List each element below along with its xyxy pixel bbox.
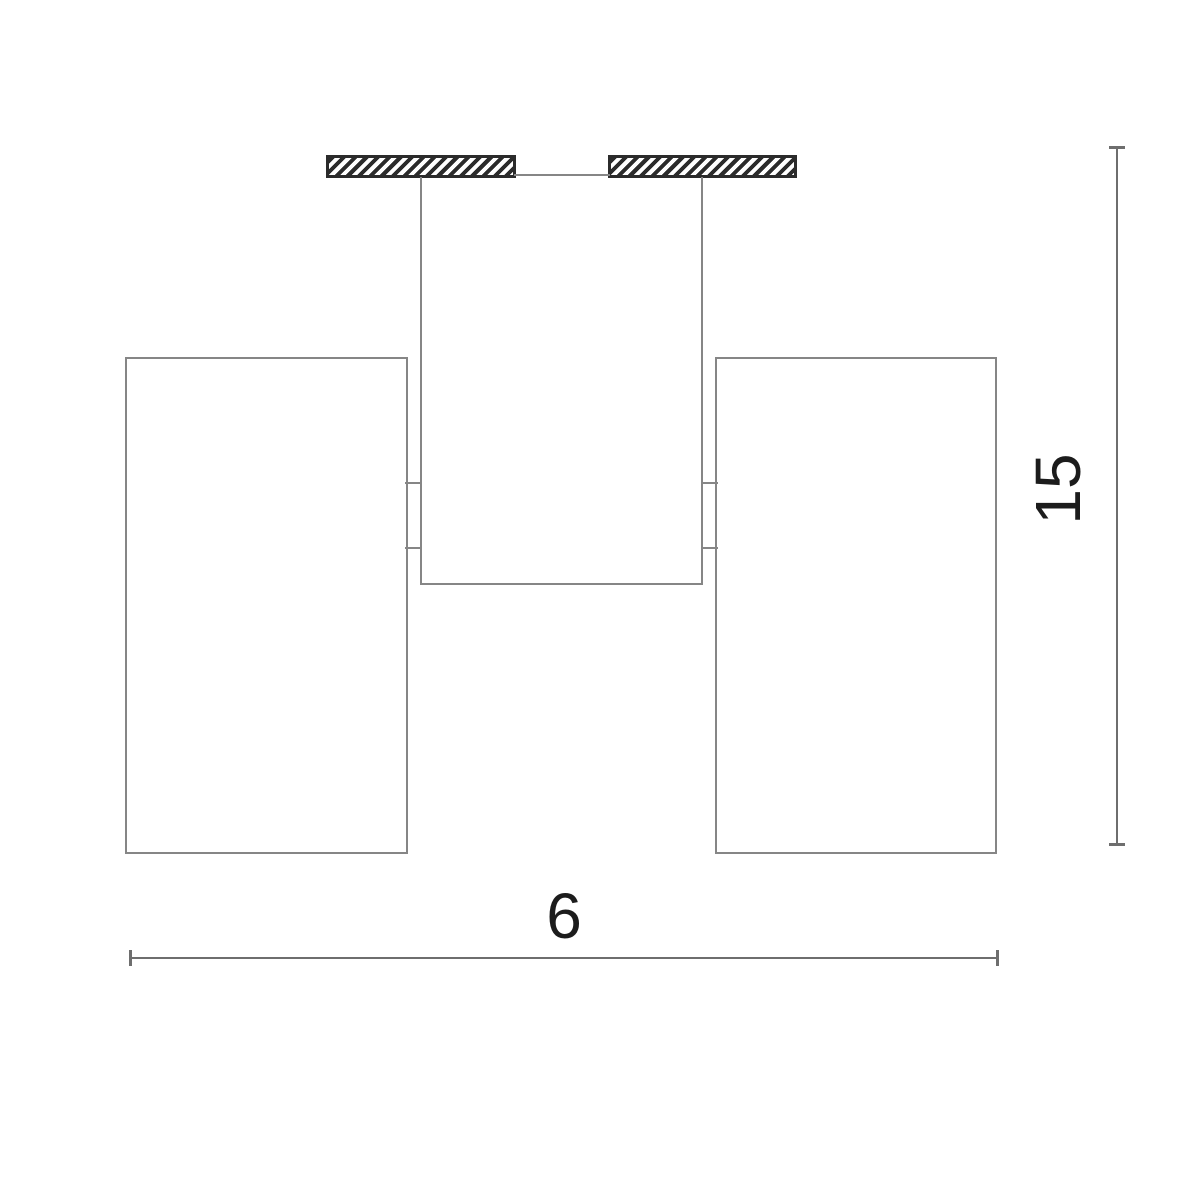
- ceiling-mount-plate-right: [608, 155, 797, 178]
- height-dimension-end-tick-top: [1109, 146, 1125, 149]
- technical-drawing-canvas: 15 6: [0, 0, 1200, 1200]
- hinge-tick-right-lower: [701, 547, 718, 549]
- width-dimension-end-tick-right: [996, 950, 999, 966]
- height-dimension-end-tick-bottom: [1109, 843, 1125, 846]
- hinge-tick-left-upper: [405, 482, 422, 484]
- width-dimension-end-tick-left: [129, 950, 132, 966]
- height-dimension-line: [1116, 148, 1118, 845]
- width-dimension-label: 6: [504, 884, 624, 948]
- ceiling-gap-line: [514, 174, 610, 176]
- hinge-tick-left-lower: [405, 547, 422, 549]
- hinge-tick-right-upper: [701, 482, 718, 484]
- ceiling-mount-plate-left: [326, 155, 516, 178]
- width-dimension-line: [130, 957, 998, 959]
- lamp-shade-left: [125, 357, 408, 854]
- height-dimension-label: 15: [1026, 429, 1090, 549]
- mounting-box: [420, 177, 703, 585]
- lamp-shade-right: [715, 357, 997, 854]
